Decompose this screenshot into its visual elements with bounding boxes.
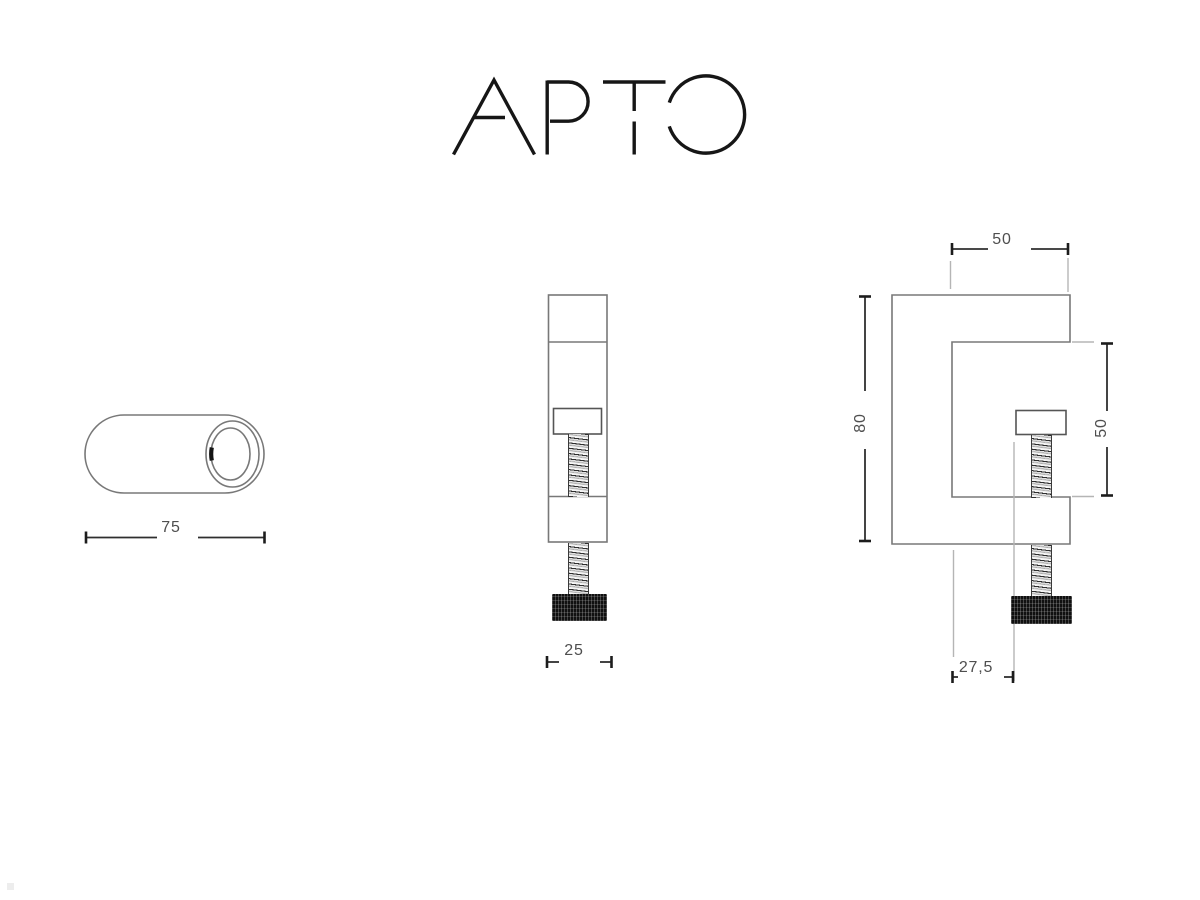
knurled-knob-front: [552, 594, 608, 621]
threaded-rod-profile-lower: [1031, 545, 1052, 597]
knurled-knob-profile: [1011, 596, 1072, 624]
dim-25-label: 25: [564, 642, 583, 660]
technical-drawing-page: APTO: [0, 0, 1200, 900]
dim-50-top-label: 50: [992, 231, 1011, 249]
dim-80-label: 80: [852, 413, 870, 432]
logo-letter-o: [669, 76, 744, 153]
clamp-front-body: [549, 295, 608, 542]
bore-outer-ellipse: [206, 421, 259, 487]
drawing-canvas: [0, 0, 1200, 900]
dim-27-5-label: 27,5: [959, 659, 993, 677]
bore-highlight-mark: [211, 448, 212, 461]
screw-head-profile: [1016, 411, 1066, 435]
bore-inner-ellipse: [211, 428, 250, 480]
screw-head-front: [554, 409, 602, 435]
clamp-c-outline: [892, 295, 1070, 544]
cylinder-body-outline: [85, 415, 264, 493]
logo-letter-p-bowl: [547, 82, 588, 121]
threaded-rod-front-lower: [568, 543, 589, 595]
page-corner-artifact: [7, 883, 14, 890]
front-view-clamp: [549, 295, 608, 542]
dim-50-right-label: 50: [1093, 418, 1111, 437]
profile-view-clamp: [892, 295, 1070, 544]
threaded-rod-profile-upper: [1031, 435, 1052, 498]
threaded-rod-front-upper: [568, 434, 589, 497]
side-view-cylinder: [85, 415, 264, 493]
apto-logo: [454, 76, 745, 155]
dim-75-label: 75: [161, 519, 180, 537]
